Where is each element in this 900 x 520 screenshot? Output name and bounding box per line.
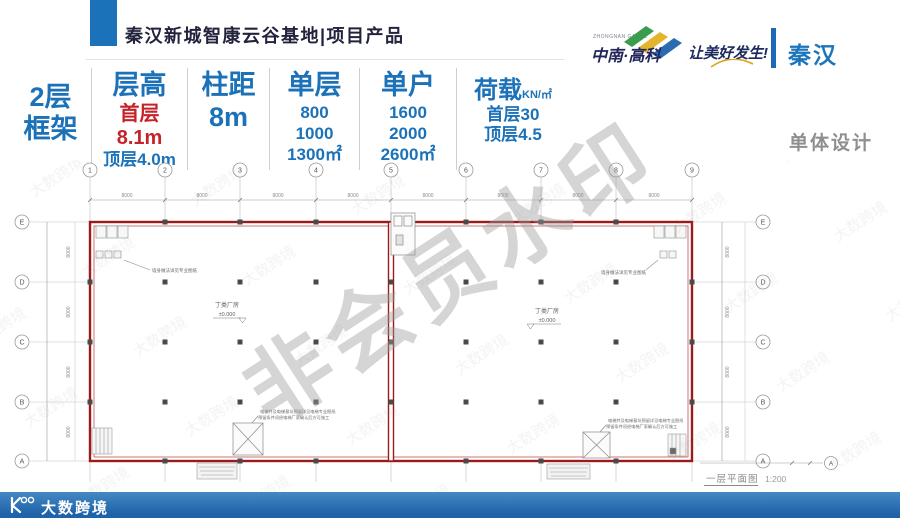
- page-title: 秦汉新城智康云谷基地|项目产品: [125, 22, 405, 48]
- brand-region-label: 秦汉: [788, 36, 838, 70]
- spec-structure-line2: 框架: [16, 114, 85, 146]
- slogan-swoosh-icon: [709, 56, 755, 74]
- spec-floor-height: 层高 首层8.1m 顶层4.0m: [92, 68, 188, 170]
- spec-single-unit-label: 单户: [366, 70, 450, 102]
- tiled-watermark: [0, 160, 900, 492]
- floor-plan: 8000 8000 8000 8000 8000 8000 8000 8000 …: [0, 160, 900, 492]
- spec-floor-height-label: 层高: [98, 70, 181, 102]
- spec-single-unit-v2: 2000: [366, 123, 450, 144]
- spec-load: 荷载KN/㎡ 首层30 顶层4.5: [457, 68, 569, 170]
- spec-row: 2层 框架 层高 首层8.1m 顶层4.0m 柱距 8m 单层 800 1000…: [10, 68, 569, 170]
- spec-structure-line1: 2层: [16, 82, 85, 114]
- brand-separator-bar: [771, 28, 776, 68]
- brand-area: ZHONGNAN GAOKE 中南·高科 让美好发生! 秦汉: [563, 22, 893, 68]
- spec-column-span-label: 柱距: [194, 70, 263, 102]
- spec-single-floor-label: 单层: [276, 70, 353, 102]
- footer-bar: 大数跨境: [0, 492, 900, 518]
- spec-floor-height-first: 首层8.1m: [98, 102, 181, 150]
- footer-logo-text: 大数跨境: [41, 497, 109, 518]
- spec-load-label: 荷载: [474, 77, 522, 104]
- spec-column-span: 柱距 8m: [188, 68, 270, 170]
- footer-logo: 大数跨境: [8, 495, 109, 520]
- spec-single-floor-v2: 1000: [276, 123, 353, 144]
- spec-load-unit: KN/㎡: [522, 89, 552, 101]
- spec-single-unit: 单户 1600 2000 2600㎡: [360, 68, 457, 170]
- spec-load-top: 顶层4.5: [463, 125, 563, 145]
- spec-single-unit-v1: 1600: [366, 102, 450, 123]
- dashu-logo-icon: [8, 495, 36, 520]
- section-label: 单体设计: [789, 128, 873, 155]
- title-accent-block: [90, 0, 117, 46]
- header-divider: [86, 59, 564, 60]
- spec-column-span-value: 8m: [194, 102, 263, 134]
- spec-load-first: 首层30: [463, 105, 563, 125]
- spec-single-floor: 单层 800 1000 1300㎡: [270, 68, 360, 170]
- brand-name: 中南·高科: [591, 42, 660, 66]
- spec-load-header: 荷载KN/㎡: [463, 70, 563, 105]
- spec-single-floor-v1: 800: [276, 102, 353, 123]
- spec-structure: 2层 框架: [10, 68, 92, 170]
